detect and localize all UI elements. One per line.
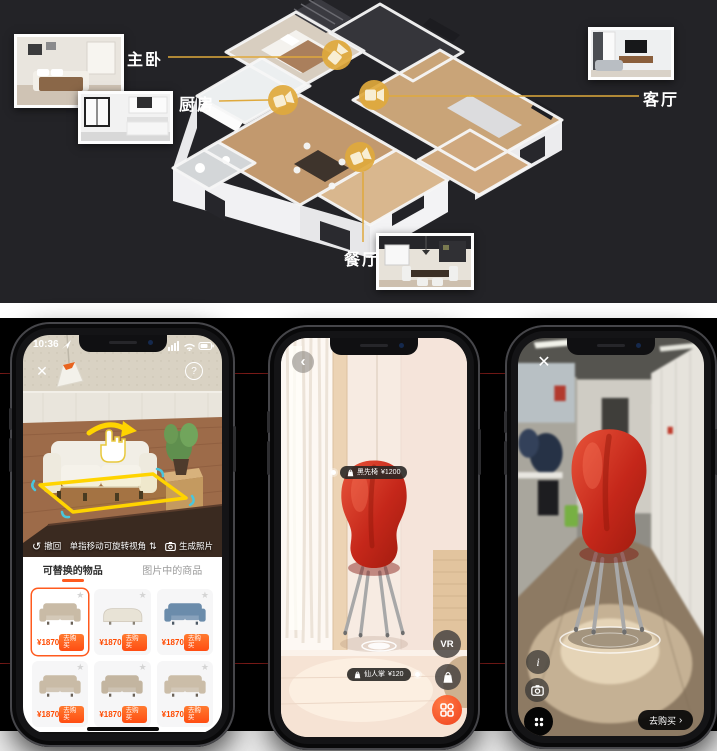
- thumbnail-living: [588, 27, 674, 80]
- battery-icon: [199, 343, 214, 350]
- buy-button[interactable]: 去购买: [122, 706, 147, 723]
- product-card[interactable]: ★ ¥1870去购买: [157, 589, 213, 655]
- product-card[interactable]: ★ ¥1870去购买: [157, 661, 213, 727]
- back-button[interactable]: ‹: [292, 351, 314, 373]
- floor-tag[interactable]: 仙人掌 ¥120: [347, 668, 420, 681]
- notch: [330, 338, 418, 355]
- four-dots-icon: [533, 716, 545, 728]
- thumbnail-kitchen: [78, 91, 173, 144]
- app-grid-icon: [440, 703, 454, 717]
- sofa-thumbnail: [37, 673, 83, 699]
- help-icon[interactable]: ?: [185, 362, 203, 380]
- app-grid-button[interactable]: [432, 695, 462, 725]
- status-icons: [168, 341, 214, 351]
- phone-left: 10:36: [10, 322, 235, 747]
- ar-overlay[interactable]: [518, 338, 704, 736]
- wifi-icon: [185, 344, 195, 349]
- undo-icon: ↺: [32, 540, 41, 553]
- chevron-right-icon: ›: [679, 715, 682, 726]
- tab-replaceable-items[interactable]: 可替换的物品: [23, 562, 123, 577]
- product-price: ¥1870: [162, 710, 184, 719]
- tag-anchor-dot: [331, 470, 336, 475]
- shopping-bag-icon: [354, 671, 361, 679]
- product-price: ¥1870: [37, 710, 59, 719]
- back-chevron-icon: ‹: [301, 353, 306, 370]
- ar-chair[interactable]: [572, 429, 647, 634]
- favorite-star-icon[interactable]: ★: [139, 663, 147, 672]
- updown-arrows-icon: ⇅: [149, 541, 157, 552]
- camera-icon: [531, 685, 544, 696]
- sofa-thumbnail: [37, 601, 83, 627]
- product-price: ¥1870: [162, 638, 184, 647]
- floorplan-section: 主卧 厨房 客厅 餐厅: [0, 0, 717, 303]
- product-price: ¥1870: [37, 638, 59, 647]
- notch: [79, 335, 167, 352]
- cart-button[interactable]: [435, 664, 461, 690]
- camera-marker-bedroom[interactable]: [322, 40, 352, 70]
- product-grid: ★ ¥1870去购买 ★ ¥1870去购买 ★ ¥1870去购买: [23, 581, 222, 727]
- chair-tag[interactable]: 黑先椅 ¥1200: [331, 466, 407, 479]
- product-card[interactable]: ★ ¥1870去购买: [32, 589, 88, 655]
- buy-button[interactable]: 去购买: [184, 706, 209, 723]
- go-buy-button[interactable]: 去购买 ›: [638, 710, 693, 730]
- screenshot-root: 主卧 厨房 客厅 餐厅: [0, 0, 717, 751]
- buy-button[interactable]: 去购买: [184, 634, 209, 651]
- ar-camera-screen: ✕ i 去购买 ›: [518, 338, 704, 736]
- phone-right: ✕ i 去购买 ›: [505, 325, 717, 749]
- signal-icon: [168, 341, 179, 351]
- phone-middle: ‹ 黑先椅 ¥1200 仙人掌 ¥120: [268, 325, 480, 750]
- tag-price: ¥1200: [381, 469, 400, 476]
- tag-anchor-dot: [415, 672, 420, 677]
- buy-button[interactable]: 去购买: [59, 706, 84, 723]
- favorite-star-icon[interactable]: ★: [139, 591, 147, 600]
- camera-marker-dining[interactable]: [345, 142, 375, 172]
- info-icon: i: [536, 655, 539, 670]
- favorite-star-icon[interactable]: ★: [201, 663, 209, 672]
- undo-button[interactable]: ↺ 撤回: [32, 540, 61, 553]
- favorite-star-icon[interactable]: ★: [76, 663, 84, 672]
- thumbnail-dining: [376, 233, 474, 290]
- shopping-bag-icon: [347, 469, 354, 477]
- status-time: 10:36: [33, 339, 59, 350]
- status-bar: 10:36: [33, 339, 71, 350]
- product-card[interactable]: ★ ¥1870去购买: [94, 661, 150, 727]
- camera-icon: [165, 542, 176, 551]
- vr-button[interactable]: VR: [433, 630, 461, 658]
- tag-price: ¥120: [388, 671, 404, 678]
- sofa-thumbnail: [162, 673, 208, 699]
- tab-items-in-image[interactable]: 图片中的商品: [123, 562, 223, 577]
- favorite-star-icon[interactable]: ★: [201, 591, 209, 600]
- more-dots-button[interactable]: [524, 707, 553, 736]
- close-icon[interactable]: ✕: [534, 352, 554, 372]
- shopping-bag-icon: [442, 671, 454, 684]
- label-living: 客厅: [643, 86, 679, 110]
- product-price: ¥1870: [99, 638, 121, 647]
- ar-toolbar: ↺ 撤回 单指移动可旋转视角 ⇅ 生成照片: [23, 536, 222, 556]
- panel-tabs: 可替换的物品 图片中的商品: [23, 557, 222, 581]
- ar-editor-screen: 10:36: [23, 335, 222, 734]
- product-panel: 可替换的物品 图片中的商品 ★ ¥1870去购买 ★ ¥1870去购买: [23, 557, 222, 732]
- buy-button[interactable]: 去购买: [59, 634, 84, 651]
- home-indicator: [87, 727, 159, 731]
- generate-photo-button[interactable]: 生成照片: [165, 540, 213, 552]
- tag-name: 仙人掌: [364, 671, 385, 678]
- ar-demo-section: 10:36: [0, 318, 717, 751]
- camera-button[interactable]: [525, 678, 549, 702]
- label-dining: 餐厅: [344, 246, 380, 270]
- sofa-thumbnail: [162, 601, 208, 627]
- sofa-thumbnail: [99, 601, 145, 627]
- product-price: ¥1870: [99, 710, 121, 719]
- sofa-thumbnail: [99, 673, 145, 699]
- label-bedroom: 主卧: [127, 46, 163, 70]
- camera-marker-living[interactable]: [359, 80, 389, 110]
- info-button[interactable]: i: [526, 650, 550, 674]
- location-arrow-icon: [62, 340, 71, 349]
- tag-name: 黑先椅: [357, 469, 378, 476]
- buy-button[interactable]: 去购买: [122, 634, 147, 651]
- notch: [567, 338, 655, 355]
- camera-marker-kitchen[interactable]: [268, 85, 298, 115]
- product-card[interactable]: ★ ¥1870去购买: [94, 589, 150, 655]
- close-icon[interactable]: ✕: [33, 362, 51, 380]
- favorite-star-icon[interactable]: ★: [76, 591, 84, 600]
- rotate-hint: 单指移动可旋转视角 ⇅: [70, 540, 157, 552]
- section-divider: [0, 303, 717, 318]
- ar-product-screen: ‹ 黑先椅 ¥1200 仙人掌 ¥120: [281, 338, 467, 737]
- product-card[interactable]: ★ ¥1870去购买: [32, 661, 88, 727]
- label-kitchen: 厨房: [179, 91, 215, 115]
